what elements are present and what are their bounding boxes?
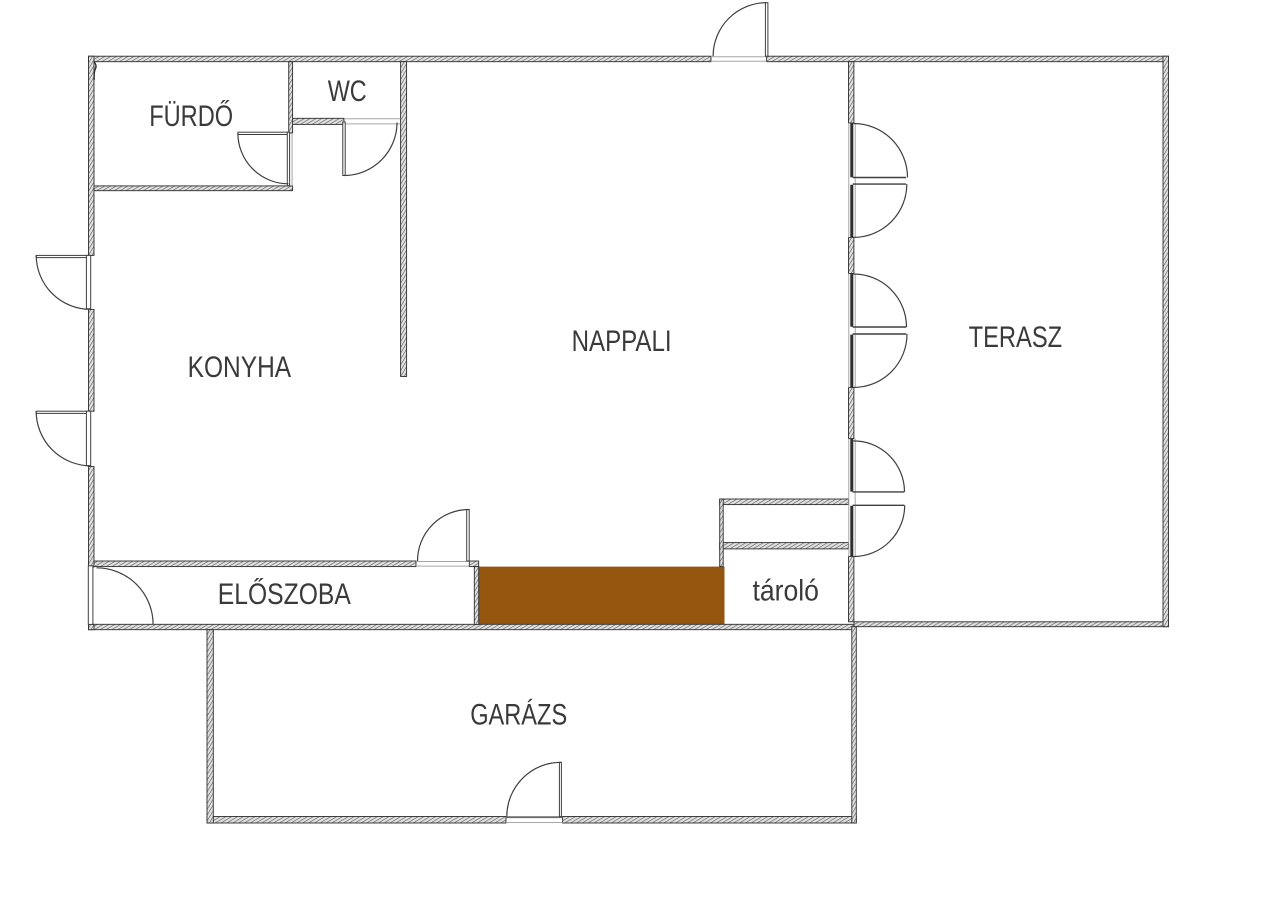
- svg-text:NAPPALI: NAPPALI: [572, 325, 672, 358]
- svg-text:ELŐSZOBA: ELŐSZOBA: [218, 578, 351, 611]
- svg-text:TERASZ: TERASZ: [969, 321, 1063, 354]
- svg-text:KONYHA: KONYHA: [188, 351, 292, 384]
- svg-text:WC: WC: [328, 75, 367, 108]
- svg-text:FÜRDŐ: FÜRDŐ: [149, 100, 233, 133]
- svg-text:GARÁZS: GARÁZS: [470, 699, 567, 732]
- svg-text:tároló: tároló: [752, 575, 819, 608]
